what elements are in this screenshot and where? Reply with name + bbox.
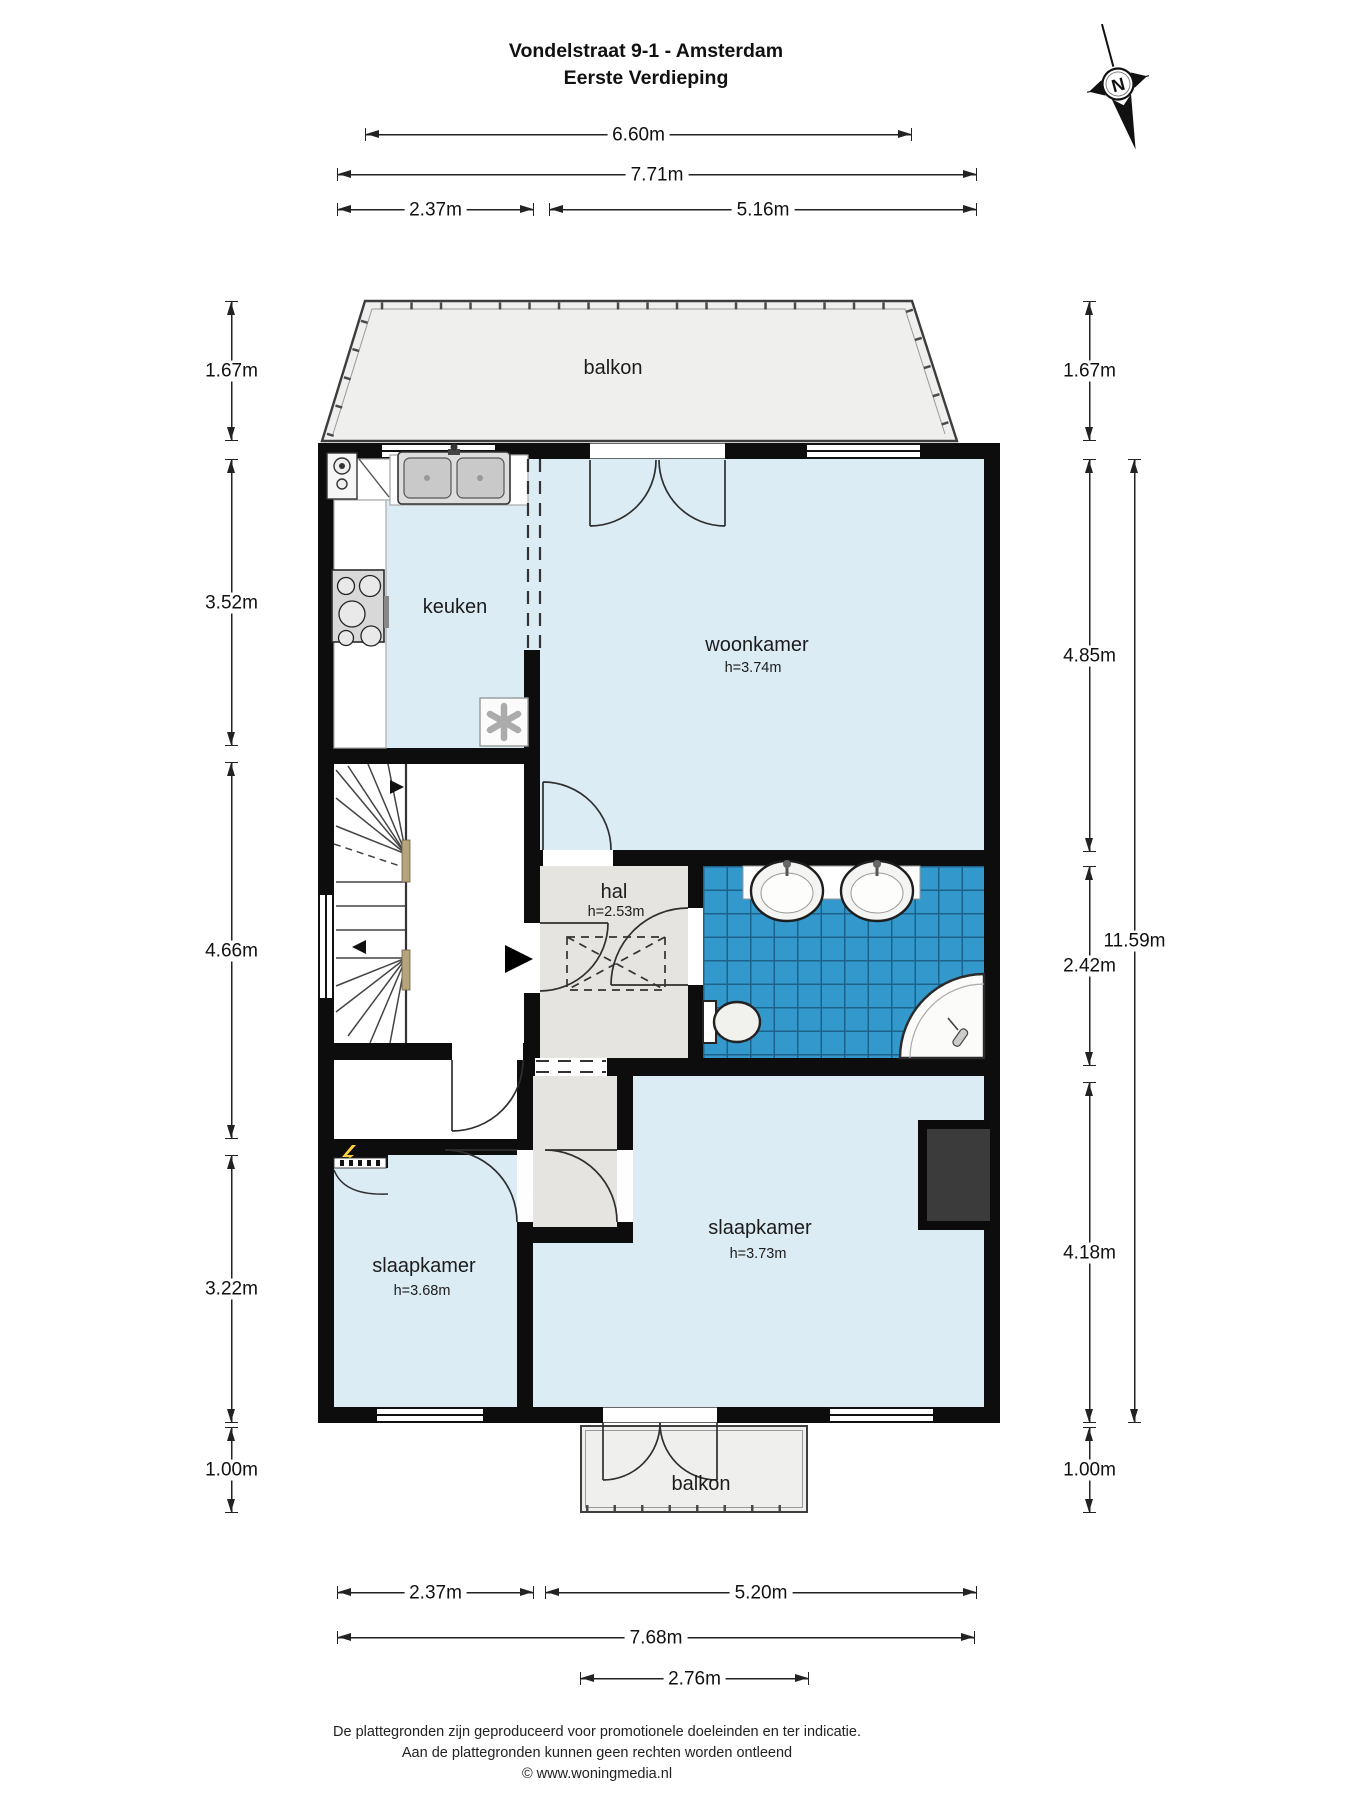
balcony-door-opening [603, 1407, 717, 1423]
wall [318, 748, 540, 764]
wall [318, 1407, 377, 1423]
dim-label: 1.67m [1058, 361, 1121, 382]
wall [984, 443, 1000, 1423]
open-passage [535, 1058, 607, 1076]
stairwell-floor [334, 764, 524, 1043]
wall [933, 1407, 1000, 1423]
window [807, 443, 920, 459]
dim-right-1-67: 1.67m [1083, 301, 1096, 441]
dim-bottom-7-68: 7.68m [337, 1631, 975, 1644]
dim-label: 7.68m [625, 1627, 688, 1648]
wall [524, 650, 540, 748]
dim-label: 2.42m [1058, 956, 1121, 977]
dim-left-1-00: 1.00m [225, 1427, 238, 1513]
wall [717, 1407, 830, 1423]
dim-label: 6.60m [607, 124, 670, 145]
wall [318, 1139, 533, 1155]
dim-left-1-67: 1.67m [225, 301, 238, 441]
balkon-bottom-deck [580, 1425, 808, 1513]
room-label-woonkamer: woonkamer [705, 635, 808, 655]
wall [607, 1058, 1000, 1076]
wall [524, 764, 540, 923]
window [377, 1407, 483, 1423]
dim-left-3-22: 3.22m [225, 1155, 238, 1423]
dim-label: 4.66m [200, 940, 263, 961]
title-floor: Eerste Verdieping [0, 65, 1292, 92]
wall [483, 1407, 603, 1423]
room-label-slaapkamer-right: slaapkamer [708, 1218, 811, 1238]
dim-label: 4.18m [1058, 1242, 1121, 1263]
dim-label: 3.22m [200, 1279, 263, 1300]
dim-label: 7.71m [626, 164, 689, 185]
dim-label: 1.00m [200, 1460, 263, 1481]
dim-label: 1.67m [200, 361, 263, 382]
dim-label: 2.37m [404, 199, 467, 220]
dim-right-4-85: 4.85m [1083, 459, 1096, 852]
dim-label: 5.16m [732, 199, 795, 220]
dim-label: 11.59m [1099, 931, 1171, 952]
door-jamb [617, 1150, 633, 1222]
door-jamb [524, 923, 540, 993]
dim-label: 3.52m [200, 592, 263, 613]
dim-right-4-18: 4.18m [1083, 1082, 1096, 1423]
dim-top-5-16: 5.16m [549, 203, 977, 216]
room-height-woonkamer: h=3.74m [725, 661, 782, 676]
dim-top-7-71: 7.71m [337, 168, 977, 181]
wall [613, 850, 1000, 866]
dim-label: 5.20m [730, 1582, 793, 1603]
dim-bottom-2-37: 2.37m [337, 1586, 534, 1599]
dim-left-3-52: 3.52m [225, 459, 238, 746]
room-slaapkamer-left-floor [334, 1155, 517, 1407]
wall [318, 443, 334, 895]
dim-right-2-42: 2.42m [1083, 866, 1096, 1066]
dim-bottom-2-76: 2.76m [580, 1672, 809, 1685]
title-address: Vondelstraat 9-1 - Amsterdam [0, 38, 1292, 65]
room-height-hal: h=2.53m [588, 905, 645, 920]
door-jamb [543, 850, 613, 866]
dim-label: 2.76m [663, 1668, 726, 1689]
wall [318, 998, 334, 1423]
floorplan-page: Vondelstraat 9-1 - Amsterdam Eerste Verd… [0, 0, 1350, 1800]
door-jamb [688, 908, 703, 985]
balcony-door-opening [590, 443, 725, 459]
room-label-balkon-bottom: balkon [672, 1474, 731, 1494]
wall [617, 1076, 633, 1150]
dim-top-6-60: 6.60m [365, 128, 912, 141]
dim-right-11-59: 11.59m [1128, 459, 1141, 1423]
wall [725, 443, 807, 459]
door-jamb [517, 1150, 533, 1222]
wall [688, 985, 703, 1058]
wall [318, 1043, 452, 1060]
closet-niche [918, 1120, 990, 1230]
disclaimer-line-1: De plattegronden zijn geproduceerd voor … [0, 1722, 1194, 1743]
dim-label: 4.85m [1058, 645, 1121, 666]
room-label-balkon-top: balkon [584, 358, 643, 378]
landing-floor [334, 1060, 517, 1139]
room-label-slaapkamer-left: slaapkamer [372, 1256, 475, 1276]
wall [533, 1227, 633, 1243]
wall [517, 1076, 533, 1139]
room-badkamer-floor [703, 866, 984, 1058]
vestibule-floor [533, 1076, 617, 1227]
window [382, 443, 495, 459]
dim-label: 1.00m [1058, 1460, 1121, 1481]
room-label-keuken: keuken [423, 597, 488, 617]
door-jamb [452, 1043, 523, 1060]
room-height-slaapkamer-left: h=3.68m [394, 1284, 451, 1299]
dim-left-4-66: 4.66m [225, 762, 238, 1139]
dim-top-2-37: 2.37m [337, 203, 534, 216]
dim-label: 2.37m [404, 1582, 467, 1603]
copyright: © www.woningmedia.nl [0, 1764, 1194, 1785]
wall [517, 1222, 533, 1407]
room-height-slaapkamer-right: h=3.73m [730, 1247, 787, 1262]
wall [688, 866, 703, 908]
room-label-hal: hal [601, 882, 628, 902]
dim-bottom-5-20: 5.20m [545, 1586, 977, 1599]
room-slaapkamer-right-wing [533, 1243, 633, 1407]
window [830, 1407, 933, 1423]
window [318, 895, 334, 998]
disclaimer: De plattegronden zijn geproduceerd voor … [0, 1722, 1194, 1785]
wall [517, 1139, 533, 1150]
dim-right-1-00: 1.00m [1083, 1427, 1096, 1513]
wall [495, 443, 590, 459]
page-title: Vondelstraat 9-1 - Amsterdam Eerste Verd… [0, 38, 1292, 92]
disclaimer-line-2: Aan de plattegronden kunnen geen rechten… [0, 1743, 1194, 1764]
